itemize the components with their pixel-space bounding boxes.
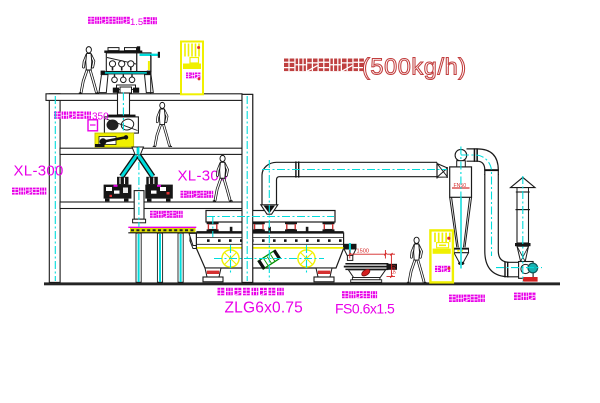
svg-text:1.5: 1.5 xyxy=(130,17,143,28)
svg-text:FS0.6x1.5: FS0.6x1.5 xyxy=(335,301,395,317)
svg-text:350: 350 xyxy=(92,112,109,123)
svg-text:ZLG6x0.75: ZLG6x0.75 xyxy=(225,300,303,317)
svg-text:1500: 1500 xyxy=(357,249,369,255)
svg-text:XL-300: XL-300 xyxy=(14,163,64,180)
svg-text:(500kg/h): (500kg/h) xyxy=(362,54,467,80)
svg-text:540: 540 xyxy=(392,265,398,274)
